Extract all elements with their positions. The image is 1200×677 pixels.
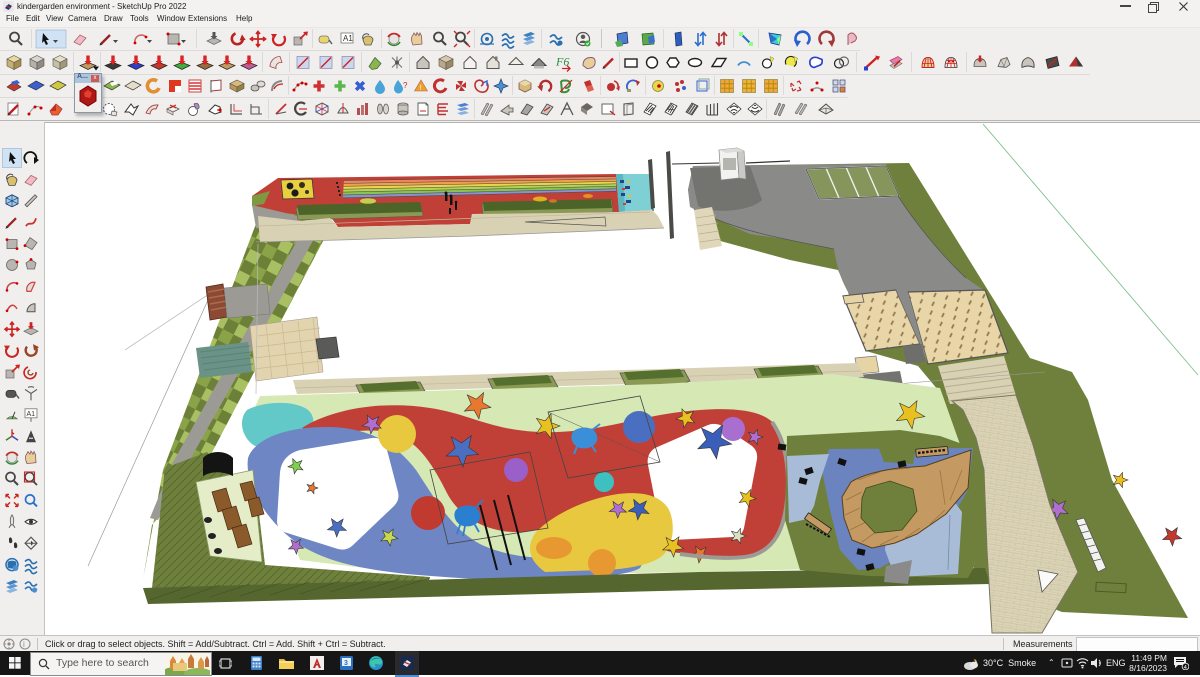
- svg-text:!: !: [420, 85, 422, 92]
- svg-text:A1: A1: [343, 34, 353, 43]
- svg-text:3: 3: [344, 660, 348, 667]
- svg-text:i: i: [23, 640, 25, 649]
- svg-text:4: 4: [1184, 665, 1187, 670]
- svg-text:?: ?: [403, 81, 408, 90]
- svg-text:A1: A1: [27, 411, 36, 418]
